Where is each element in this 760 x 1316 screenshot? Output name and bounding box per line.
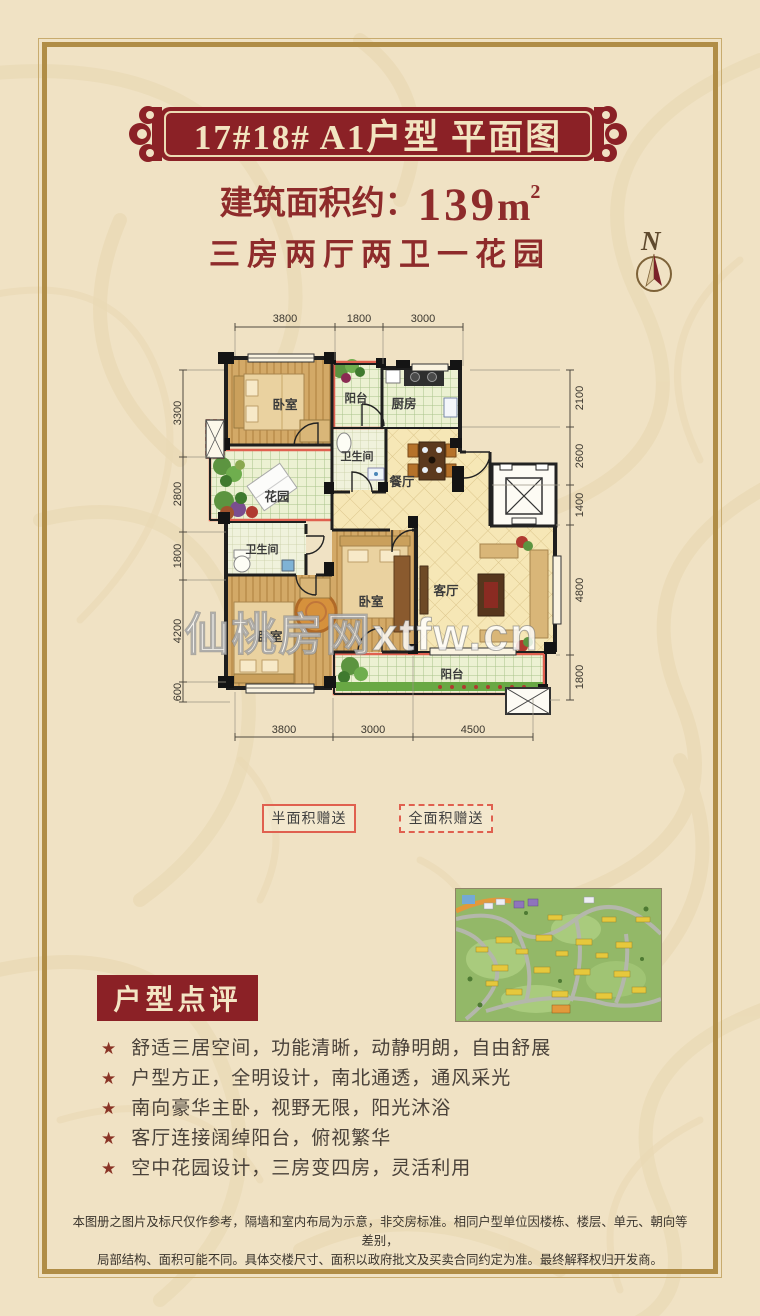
review-text: 舒适三居空间，功能清晰，动静明朗，自由舒展	[131, 1038, 551, 1059]
dim-bottom-1: 3800	[272, 724, 296, 736]
room-label-garden: 花园	[264, 489, 289, 504]
area-value: 139	[418, 179, 498, 231]
review-item: ★ 舒适三居空间，功能清晰，动静明朗，自由舒展	[101, 1038, 601, 1059]
legend-full-area: 全面积赠送	[399, 804, 493, 833]
compass-icon	[634, 250, 674, 296]
room-label-bedroom1: 卧室	[272, 397, 298, 412]
banner-scroll-right-icon	[594, 103, 628, 165]
dim-top-1: 3800	[273, 313, 297, 325]
star-icon: ★	[101, 1038, 117, 1059]
dim-top-3: 3000	[411, 313, 435, 325]
room-label-dining: 餐厅	[388, 474, 415, 489]
review-text: 空中花园设计，三房变四房，灵活利用	[131, 1158, 471, 1179]
floor-plan: 3800 1800 3000 3800 3000 4500 3300 2800 …	[160, 300, 605, 760]
star-icon: ★	[101, 1068, 117, 1089]
review-item: ★ 客厅连接阔绰阳台，俯视繁华	[101, 1128, 601, 1149]
dim-right-5: 1800	[574, 665, 586, 689]
dim-top-2: 1800	[347, 313, 371, 325]
disclaimer-line1: 本图册之图片及标尺仅作参考，隔墙和室内布局为示意，非交房标准。相同户型单位因楼栋…	[70, 1213, 690, 1251]
area-superscript: 2	[530, 181, 540, 203]
review-text: 客厅连接阔绰阳台，俯视繁华	[131, 1128, 391, 1149]
room-label-balcony-top: 阳台	[345, 391, 368, 405]
review-item: ★ 户型方正，全明设计，南北通透，通风采光	[101, 1068, 601, 1089]
watermark: 仙桃房网xtfw.cn	[184, 609, 539, 660]
room-label-balcony-bottom: 阳台	[441, 667, 464, 681]
star-icon: ★	[101, 1128, 117, 1149]
floorplan-poster: 17#18# A1户型 平面图 建筑面积约：139m2 三房两厅两卫一花园 N	[0, 0, 760, 1316]
disclaimer: 本图册之图片及标尺仅作参考，隔墙和室内布局为示意，非交房标准。相同户型单位因楼栋…	[70, 1213, 690, 1270]
site-plan-thumbnail	[455, 888, 662, 1022]
area-unit: m	[497, 184, 530, 229]
dim-right-1: 2100	[574, 386, 586, 410]
area-label: 建筑面积约：	[220, 186, 418, 222]
room-label-bath2: 卫生间	[246, 542, 279, 556]
dim-bottom-2: 3000	[361, 724, 385, 736]
dim-left-3: 1800	[172, 544, 184, 568]
page-title: 17#18# A1户型 平面图	[160, 107, 596, 161]
dim-left-1: 3300	[172, 401, 184, 425]
dim-bottom-3: 4500	[461, 724, 485, 736]
dim-left-2: 2800	[172, 482, 184, 506]
dim-right-2: 2600	[574, 444, 586, 468]
review-item: ★ 空中花园设计，三房变四房，灵活利用	[101, 1158, 601, 1179]
dim-left-5: 600	[172, 683, 184, 701]
legend-half-area: 半面积赠送	[262, 804, 356, 833]
room-label-bath1: 卫生间	[341, 449, 374, 463]
review-text: 户型方正，全明设计，南北通透，通风采光	[131, 1068, 511, 1089]
title-banner: 17#18# A1户型 平面图	[160, 107, 596, 161]
room-label-bedroom2: 卧室	[358, 594, 384, 609]
star-icon: ★	[101, 1158, 117, 1179]
review-heading-badge: 户型点评	[97, 975, 258, 1021]
area-headline: 建筑面积约：139m2	[0, 176, 760, 232]
room-label-living: 客厅	[432, 583, 459, 598]
dim-right-4: 4800	[574, 578, 586, 602]
star-icon: ★	[101, 1098, 117, 1119]
banner-scroll-left-icon	[128, 103, 162, 165]
review-list: ★ 舒适三居空间，功能清晰，动静明朗，自由舒展 ★ 户型方正，全明设计，南北通透…	[101, 1038, 601, 1188]
review-item: ★ 南向豪华主卧，视野无限，阳光沐浴	[101, 1098, 601, 1119]
room-label-kitchen: 厨房	[391, 396, 416, 411]
dim-left-4: 4200	[172, 619, 184, 643]
review-text: 南向豪华主卧，视野无限，阳光沐浴	[131, 1098, 451, 1119]
disclaimer-line2: 局部结构、面积可能不同。具体交楼尺寸、面积以政府批文及买卖合同约定为准。最终解释…	[70, 1251, 690, 1270]
dim-right-3: 1400	[574, 493, 586, 517]
